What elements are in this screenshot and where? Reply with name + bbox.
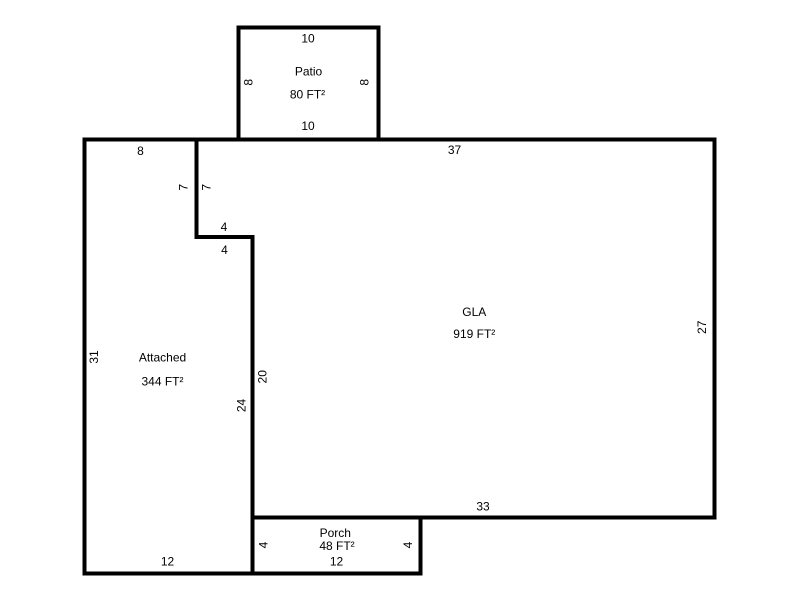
svg-text:10: 10 xyxy=(301,119,315,133)
svg-text:7: 7 xyxy=(199,184,213,191)
svg-text:4: 4 xyxy=(221,243,228,257)
svg-text:4: 4 xyxy=(401,541,415,548)
svg-text:4: 4 xyxy=(221,220,228,234)
svg-text:48 FT²: 48 FT² xyxy=(319,539,354,553)
svg-text:GLA: GLA xyxy=(462,305,486,319)
svg-text:31: 31 xyxy=(87,350,101,364)
svg-text:12: 12 xyxy=(330,555,344,569)
svg-text:12: 12 xyxy=(161,555,175,569)
svg-text:8: 8 xyxy=(357,79,371,86)
svg-text:Patio: Patio xyxy=(295,64,323,78)
svg-text:27: 27 xyxy=(695,320,709,334)
svg-text:Porch: Porch xyxy=(320,526,351,540)
svg-text:8: 8 xyxy=(137,144,144,158)
svg-text:20: 20 xyxy=(255,370,269,384)
svg-text:10: 10 xyxy=(301,31,315,45)
svg-text:37: 37 xyxy=(448,143,462,157)
svg-text:Attached: Attached xyxy=(139,351,186,365)
svg-text:7: 7 xyxy=(177,184,191,191)
svg-text:919 FT²: 919 FT² xyxy=(453,327,495,341)
svg-text:24: 24 xyxy=(234,399,248,413)
svg-text:344 FT²: 344 FT² xyxy=(141,375,183,389)
svg-text:8: 8 xyxy=(242,79,256,86)
svg-text:4: 4 xyxy=(256,541,270,548)
svg-text:33: 33 xyxy=(476,500,490,514)
svg-text:80 FT²: 80 FT² xyxy=(290,87,325,101)
